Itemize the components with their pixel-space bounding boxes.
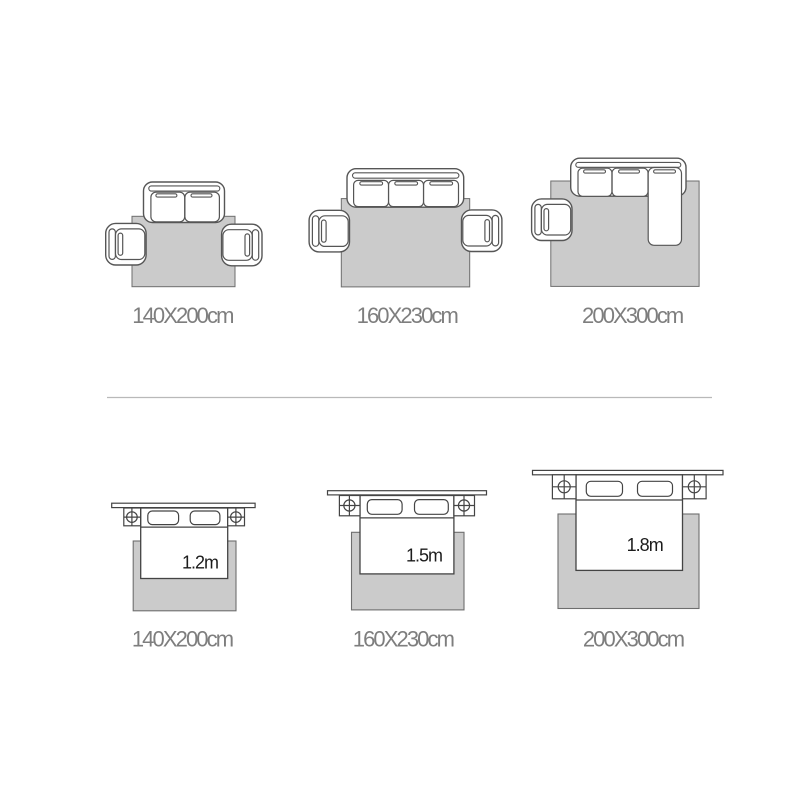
svg-text:1.8m: 1.8m — [627, 535, 663, 555]
svg-text:200X300cm: 200X300cm — [583, 627, 684, 652]
svg-text:1.5m: 1.5m — [406, 545, 442, 565]
svg-text:140X200cm: 140X200cm — [132, 627, 233, 652]
svg-text:200X300cm: 200X300cm — [582, 303, 683, 328]
svg-text:1.2m: 1.2m — [182, 553, 218, 573]
svg-text:140X200cm: 140X200cm — [132, 303, 233, 328]
svg-text:160X230cm: 160X230cm — [357, 303, 458, 328]
svg-text:160X230cm: 160X230cm — [353, 627, 454, 652]
